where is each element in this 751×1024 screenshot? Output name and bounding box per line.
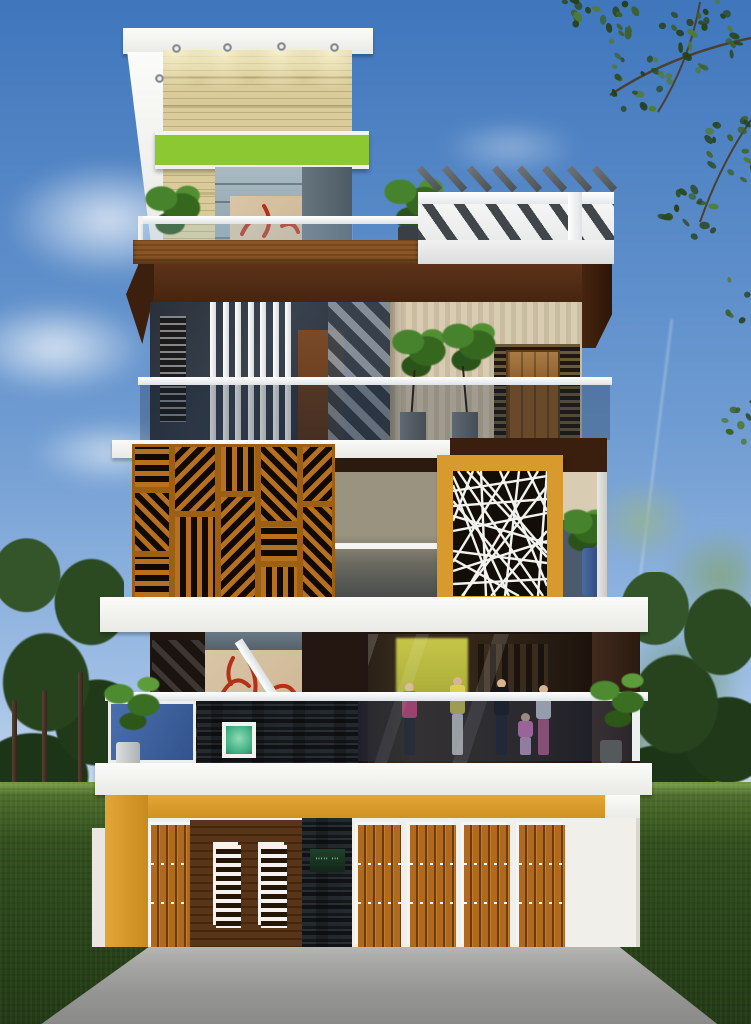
jali-tile	[132, 444, 172, 490]
louver-slats	[216, 845, 241, 928]
mustard-band	[105, 795, 605, 820]
pergola-fin	[592, 166, 617, 193]
house-name-plate: ''''' '''	[310, 849, 345, 872]
rooftop-pergola	[418, 166, 614, 244]
pergola-beam	[418, 192, 614, 204]
jali-tile	[172, 514, 218, 600]
floor-slab	[100, 597, 648, 632]
balcony-handrail	[138, 377, 612, 385]
jali-tile	[300, 504, 335, 600]
downlight-icon	[330, 43, 339, 52]
wooden-gate-panel	[148, 822, 190, 944]
jali-tile	[172, 444, 218, 514]
jali-tile	[218, 494, 258, 600]
tree-trunk	[78, 672, 83, 790]
louvered-window	[258, 842, 284, 925]
gate-slats	[151, 825, 193, 947]
pergola-fin	[517, 166, 542, 193]
wooden-jali-screen	[132, 444, 335, 600]
art-panel-header	[205, 632, 302, 652]
random-lines-jali-icon	[453, 471, 547, 596]
gate-slats	[358, 825, 401, 947]
pergola-fin	[542, 166, 567, 193]
jali-tile	[258, 444, 300, 524]
louver-slats	[261, 845, 287, 928]
gate-slats	[410, 825, 456, 947]
pergola-fin	[442, 166, 467, 193]
hanging-plant	[98, 668, 168, 742]
pergola-post	[568, 192, 582, 244]
gate-slats	[464, 825, 510, 947]
slab-edge	[597, 472, 607, 597]
compound-wall	[92, 828, 105, 947]
pergola-fin	[467, 166, 492, 193]
plant-pot	[600, 740, 622, 764]
glass-bay	[335, 458, 443, 598]
jali-tile	[258, 524, 300, 564]
jali-tile	[132, 490, 172, 554]
jali-tile	[300, 444, 335, 504]
cloud	[0, 300, 150, 395]
downlight-icon	[172, 44, 181, 53]
wooden-gate-panel	[461, 822, 507, 944]
handrail-line	[335, 543, 443, 549]
wall-shadow-edge	[636, 818, 640, 947]
wooden-gate-panel	[516, 822, 562, 944]
pergola-fin	[567, 166, 592, 193]
band-corner	[605, 795, 640, 820]
pergola-fin	[492, 166, 517, 193]
downlight-icon	[277, 42, 286, 51]
jali-tile	[132, 554, 172, 600]
green-glass-canopy	[155, 131, 369, 169]
wood-deck-band	[133, 240, 418, 264]
green-window	[222, 722, 256, 758]
wooden-gate-panel	[355, 822, 398, 944]
stone-gate-pillar	[302, 818, 352, 947]
gate-slats	[519, 825, 565, 947]
hanging-plant	[585, 664, 651, 740]
jali-tile	[258, 564, 300, 600]
deck-band-white	[418, 240, 614, 264]
pergola-louver-screen	[418, 204, 614, 244]
wooden-gate-panel	[407, 822, 453, 944]
pergola-fin	[417, 166, 442, 193]
potted-plant	[392, 324, 446, 384]
tree-trunk	[12, 700, 17, 790]
floor-slab	[95, 763, 652, 795]
balcony-glass-railing	[140, 385, 610, 440]
tree-trunk	[42, 690, 47, 790]
jali-tile	[218, 444, 258, 494]
downlight-icon	[223, 43, 232, 52]
brown-fascia-box	[138, 264, 612, 302]
downlight-icon	[155, 74, 164, 83]
deck-handrail	[105, 692, 648, 701]
architectural-render: ''''' '''	[0, 0, 751, 1024]
mustard-column	[105, 795, 148, 947]
cnc-jali-panel	[453, 471, 547, 596]
louvered-window	[213, 842, 238, 925]
cnc-jali-frame	[437, 455, 563, 612]
potted-plant	[442, 318, 496, 378]
